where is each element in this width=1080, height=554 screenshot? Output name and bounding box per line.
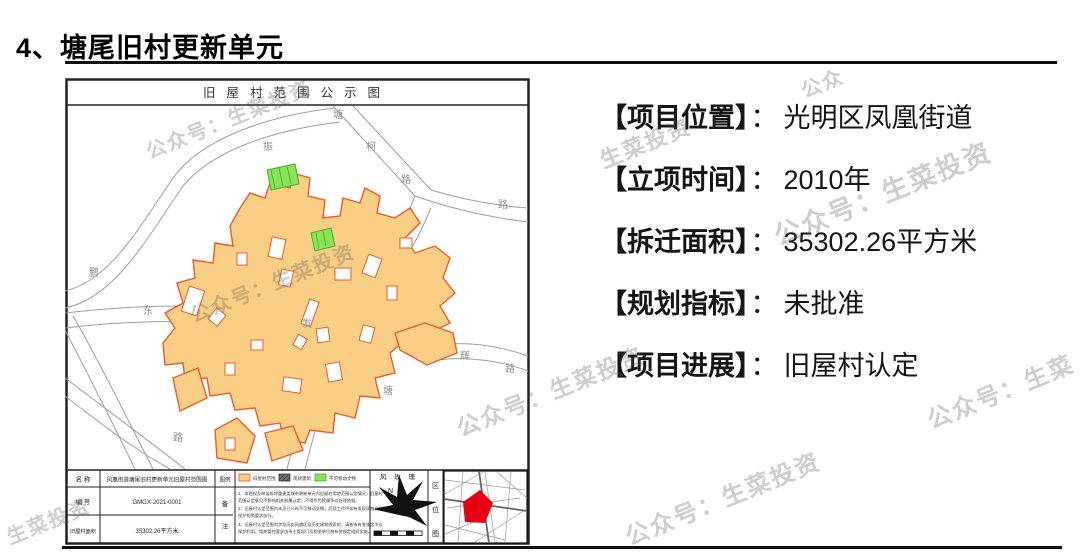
- locator-map: [444, 471, 527, 543]
- info-label: 【项目位置】: [600, 103, 749, 133]
- info-label: 【立项时间】: [600, 165, 749, 195]
- svg-text:塘: 塘: [333, 108, 343, 121]
- info-colon: ：: [749, 289, 784, 319]
- svg-text:范围认定意见不影响相关权属认定，不得作为权属争议处理依据。: 范围认定意见不影响相关权属认定，不得作为权属争议处理依据。: [238, 497, 359, 504]
- info-colon: ：: [749, 165, 784, 195]
- legend-swatch-heritage: [315, 474, 326, 481]
- area-value: 35302.26平方米: [135, 527, 178, 535]
- bottom-rule: [62, 546, 1062, 549]
- info-row-approval-date: 【立项时间】：2010年: [600, 158, 1070, 194]
- info-label: 【规划指标】: [600, 289, 749, 319]
- svg-text:路: 路: [498, 198, 508, 211]
- svg-text:3、旧屋村认定范围内涉及历史风貌区及历史建筑线索的，请按市有: 3、旧屋村认定范围内涉及历史风貌区及历史建筑线索的，请按市有关规定予以: [238, 521, 384, 528]
- info-colon: ：: [749, 103, 784, 133]
- info-value: 2010年: [784, 165, 871, 195]
- svg-text:保护利用，相关管控要求由市主管部门及相关单位按有关规定组织实: 保护利用，相关管控要求由市主管部门及相关单位按有关规定组织实施。: [238, 528, 372, 535]
- notes-label-2: 注: [222, 521, 229, 530]
- location-label-3: 图: [432, 530, 439, 538]
- info-label: 【拆迁面积】: [600, 227, 749, 257]
- info-value: 旧屋村认定: [784, 351, 919, 381]
- watermark: 公众号：生菜投资: [619, 442, 825, 552]
- info-row-progress: 【项目进展】：旧屋村认定: [600, 344, 1070, 380]
- info-row-location: 【项目位置】：光明区凤凰街道: [600, 96, 1070, 132]
- svg-text:发: 发: [302, 317, 312, 330]
- svg-text:路: 路: [401, 173, 411, 186]
- legend-swatch-buildings: [279, 474, 290, 481]
- info-label: 【项目进展】: [600, 351, 749, 381]
- svg-text:振: 振: [263, 140, 273, 153]
- info-colon: ：: [749, 351, 784, 381]
- planning-map: 旧屋村范围公示图: [65, 78, 530, 545]
- name-value: 凤凰街道塘尾旧村更新单元旧屋村范围图: [107, 476, 208, 484]
- map-title: 旧屋村范围公示图: [203, 86, 391, 100]
- notes-label-1: 备: [222, 499, 229, 508]
- legend-item-heritage: 不可移动文物: [329, 475, 356, 482]
- name-label: 名 称: [76, 475, 91, 484]
- code-value: GMGX-2021-0001: [132, 500, 182, 506]
- title-underline: [65, 61, 1057, 64]
- project-info-panel: 【项目位置】：光明区凤凰街道 【立项时间】：2010年 【拆迁面积】：35302…: [600, 96, 1070, 406]
- info-value: 35302.26平方米: [784, 227, 978, 257]
- legend-swatch-area: [239, 474, 250, 481]
- code-label: 编 号: [76, 497, 91, 506]
- svg-text:路: 路: [505, 362, 515, 375]
- page-title: 4、塘尾旧村更新单元: [16, 26, 284, 65]
- svg-text:1、本图仅反映该拆除重建类城市更新单元内旧屋村用地范围认定情: 1、本图仅反映该拆除重建类城市更新单元内旧屋村用地范围认定情况，旧屋村: [238, 490, 384, 497]
- svg-text:2、旧屋村认定范围内未见已公布不可移动文物，后续工作中如有发: 2、旧屋村认定范围内未见已公布不可移动文物，后续工作中如有发现须按文物: [238, 505, 383, 512]
- svg-text:东: 东: [143, 304, 153, 317]
- svg-text:保护相关要求执行。: 保护相关要求执行。: [238, 512, 276, 519]
- info-row-planning-index: 【规划指标】：未批准: [600, 282, 1070, 318]
- svg-text:柯: 柯: [366, 140, 376, 153]
- location-label-1: 区: [432, 482, 439, 490]
- legend-item-buildings: 现状建筑: [293, 475, 311, 482]
- slide-page: 4、塘尾旧村更新单元 旧屋村范围公示图: [0, 0, 1080, 554]
- legend-item-area: 旧屋村范围: [253, 475, 276, 482]
- legend: 旧屋村范围 现状建筑 不可移动文物: [239, 474, 356, 482]
- svg-text:鹏: 鹏: [89, 266, 99, 279]
- svg-text:路: 路: [173, 431, 183, 444]
- scale-bar: [374, 531, 422, 536]
- legend-label: 图例: [219, 476, 231, 484]
- info-colon: ：: [749, 227, 784, 257]
- area-label: 旧屋村面积: [70, 527, 96, 535]
- info-row-demolition-area: 【拆迁面积】：35302.26平方米: [600, 220, 1070, 256]
- info-value: 光明区凤凰街道: [784, 103, 973, 133]
- svg-text:塘: 塘: [383, 384, 393, 397]
- info-value: 未批准: [784, 289, 865, 319]
- planning-map-svg: 旧屋村范围公示图: [65, 78, 530, 545]
- svg-text:辉: 辉: [460, 350, 470, 362]
- location-label-2: 位: [432, 505, 439, 514]
